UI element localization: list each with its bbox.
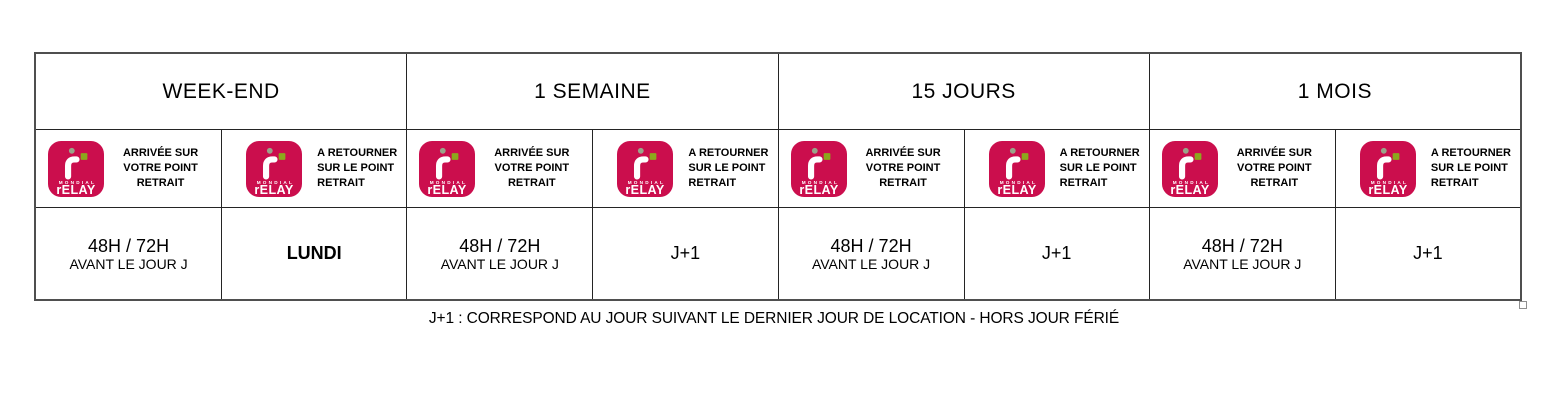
return-info-cell: MONDIAL rELAY A RETOURNER SUR LE POINT R… bbox=[1335, 129, 1520, 207]
mondial-relay-logo: MONDIAL rELAY bbox=[1162, 141, 1218, 197]
arrival-info-cell: MONDIAL rELAY ARRIVÉE SUR VOTRE POINT RE… bbox=[779, 129, 964, 207]
logo-relay-text: rELAY bbox=[56, 183, 95, 197]
period-column-1-mois: 1 MOIS MONDIAL rELAY ARRIVÉE SUR VOTRE P… bbox=[1149, 54, 1520, 299]
return-info-cell: MONDIAL rELAY A RETOURNER SUR LE POINT R… bbox=[964, 129, 1149, 207]
mondial-relay-logo: MONDIAL rELAY bbox=[48, 141, 104, 197]
return-label-line1: A RETOURNER bbox=[688, 146, 768, 161]
return-label-line1: A RETOURNER bbox=[1431, 146, 1511, 161]
footnote-caption: J+1 : CORRESPOND AU JOUR SUIVANT LE DERN… bbox=[0, 310, 1548, 328]
logo-relay-text: rELAY bbox=[255, 183, 294, 197]
arrival-label-line1: ARRIVÉE SUR bbox=[108, 146, 213, 161]
return-label-line3: RETRAIT bbox=[1431, 176, 1511, 191]
arrival-value-cell: 48H / 72H AVANT LE JOUR J bbox=[779, 207, 964, 299]
arrival-label-line1: ARRIVÉE SUR bbox=[851, 146, 956, 161]
arrival-value-main: 48H / 72H bbox=[831, 236, 912, 257]
mondial-relay-logo: MONDIAL rELAY bbox=[246, 141, 302, 197]
return-label-line2: SUR LE POINT bbox=[1431, 161, 1511, 176]
return-label-line1: A RETOURNER bbox=[317, 146, 397, 161]
arrival-info-cell: MONDIAL rELAY ARRIVÉE SUR VOTRE POINT RE… bbox=[1150, 129, 1335, 207]
arrival-value-main: 48H / 72H bbox=[88, 236, 169, 257]
return-label-line2: SUR LE POINT bbox=[317, 161, 397, 176]
arrival-label: ARRIVÉE SUR VOTRE POINT RETRAIT bbox=[475, 146, 588, 191]
return-label: A RETOURNER SUR LE POINT RETRAIT bbox=[688, 146, 768, 191]
arrival-label-line2: VOTRE POINT RETRAIT bbox=[108, 161, 213, 191]
rental-periods-table: WEEK-END MONDIAL rELAY ARRIVÉE SUR VOTRE… bbox=[34, 52, 1522, 301]
return-label-line2: SUR LE POINT bbox=[1060, 161, 1140, 176]
return-label-line2: SUR LE POINT bbox=[688, 161, 768, 176]
return-value-cell: J+1 bbox=[592, 207, 777, 299]
logo-relay-text: rELAY bbox=[1170, 183, 1209, 197]
mondial-relay-logo: MONDIAL rELAY bbox=[989, 141, 1045, 197]
return-info-cell: MONDIAL rELAY A RETOURNER SUR LE POINT R… bbox=[221, 129, 406, 207]
arrival-label: ARRIVÉE SUR VOTRE POINT RETRAIT bbox=[104, 146, 217, 191]
return-label-line3: RETRAIT bbox=[1060, 176, 1140, 191]
arrival-label: ARRIVÉE SUR VOTRE POINT RETRAIT bbox=[1218, 146, 1331, 191]
arrival-label-line2: VOTRE POINT RETRAIT bbox=[479, 161, 584, 191]
period-header: 1 MOIS bbox=[1150, 54, 1520, 129]
return-label-line3: RETRAIT bbox=[688, 176, 768, 191]
arrival-value-sub: AVANT LE JOUR J bbox=[812, 257, 930, 272]
period-header: 1 SEMAINE bbox=[407, 54, 777, 129]
arrival-value-cell: 48H / 72H AVANT LE JOUR J bbox=[36, 207, 221, 299]
return-value: LUNDI bbox=[287, 243, 342, 264]
arrival-label-line1: ARRIVÉE SUR bbox=[1222, 146, 1327, 161]
period-column-weekend: WEEK-END MONDIAL rELAY ARRIVÉE SUR VOTRE… bbox=[36, 54, 406, 299]
arrival-value-main: 48H / 72H bbox=[1202, 236, 1283, 257]
arrival-label-line2: VOTRE POINT RETRAIT bbox=[851, 161, 956, 191]
return-info-cell: MONDIAL rELAY A RETOURNER SUR LE POINT R… bbox=[592, 129, 777, 207]
mondial-relay-logo: MONDIAL rELAY bbox=[791, 141, 847, 197]
arrival-value-cell: 48H / 72H AVANT LE JOUR J bbox=[1150, 207, 1335, 299]
mondial-relay-logo: MONDIAL rELAY bbox=[1360, 141, 1416, 197]
resize-handle[interactable] bbox=[1519, 301, 1527, 309]
period-column-1-semaine: 1 SEMAINE MONDIAL rELAY ARRIVÉE SUR VOTR… bbox=[406, 54, 777, 299]
arrival-info-cell: MONDIAL rELAY ARRIVÉE SUR VOTRE POINT RE… bbox=[407, 129, 592, 207]
arrival-label-line2: VOTRE POINT RETRAIT bbox=[1222, 161, 1327, 191]
arrival-value-sub: AVANT LE JOUR J bbox=[69, 257, 187, 272]
return-value: J+1 bbox=[1413, 243, 1443, 264]
return-label: A RETOURNER SUR LE POINT RETRAIT bbox=[1060, 146, 1140, 191]
mondial-relay-logo: MONDIAL rELAY bbox=[419, 141, 475, 197]
logo-relay-text: rELAY bbox=[626, 183, 665, 197]
arrival-label-line1: ARRIVÉE SUR bbox=[479, 146, 584, 161]
arrival-info-cell: MONDIAL rELAY ARRIVÉE SUR VOTRE POINT RE… bbox=[36, 129, 221, 207]
logo-relay-text: rELAY bbox=[428, 183, 467, 197]
arrival-value-main: 48H / 72H bbox=[459, 236, 540, 257]
return-value-cell: J+1 bbox=[1335, 207, 1520, 299]
logo-relay-text: rELAY bbox=[799, 183, 838, 197]
period-header: 15 JOURS bbox=[779, 54, 1149, 129]
logo-relay-text: rELAY bbox=[1368, 183, 1407, 197]
return-value-cell: LUNDI bbox=[221, 207, 406, 299]
period-header: WEEK-END bbox=[36, 54, 406, 129]
return-value: J+1 bbox=[671, 243, 701, 264]
return-value-cell: J+1 bbox=[964, 207, 1149, 299]
arrival-label: ARRIVÉE SUR VOTRE POINT RETRAIT bbox=[847, 146, 960, 191]
logo-relay-text: rELAY bbox=[997, 183, 1036, 197]
arrival-value-sub: AVANT LE JOUR J bbox=[1183, 257, 1301, 272]
period-column-15-jours: 15 JOURS MONDIAL rELAY ARRIVÉE SUR VOTRE… bbox=[778, 54, 1149, 299]
return-value: J+1 bbox=[1042, 243, 1072, 264]
arrival-value-sub: AVANT LE JOUR J bbox=[441, 257, 559, 272]
return-label-line3: RETRAIT bbox=[317, 176, 397, 191]
return-label: A RETOURNER SUR LE POINT RETRAIT bbox=[317, 146, 397, 191]
mondial-relay-logo: MONDIAL rELAY bbox=[617, 141, 673, 197]
return-label: A RETOURNER SUR LE POINT RETRAIT bbox=[1431, 146, 1511, 191]
arrival-value-cell: 48H / 72H AVANT LE JOUR J bbox=[407, 207, 592, 299]
return-label-line1: A RETOURNER bbox=[1060, 146, 1140, 161]
